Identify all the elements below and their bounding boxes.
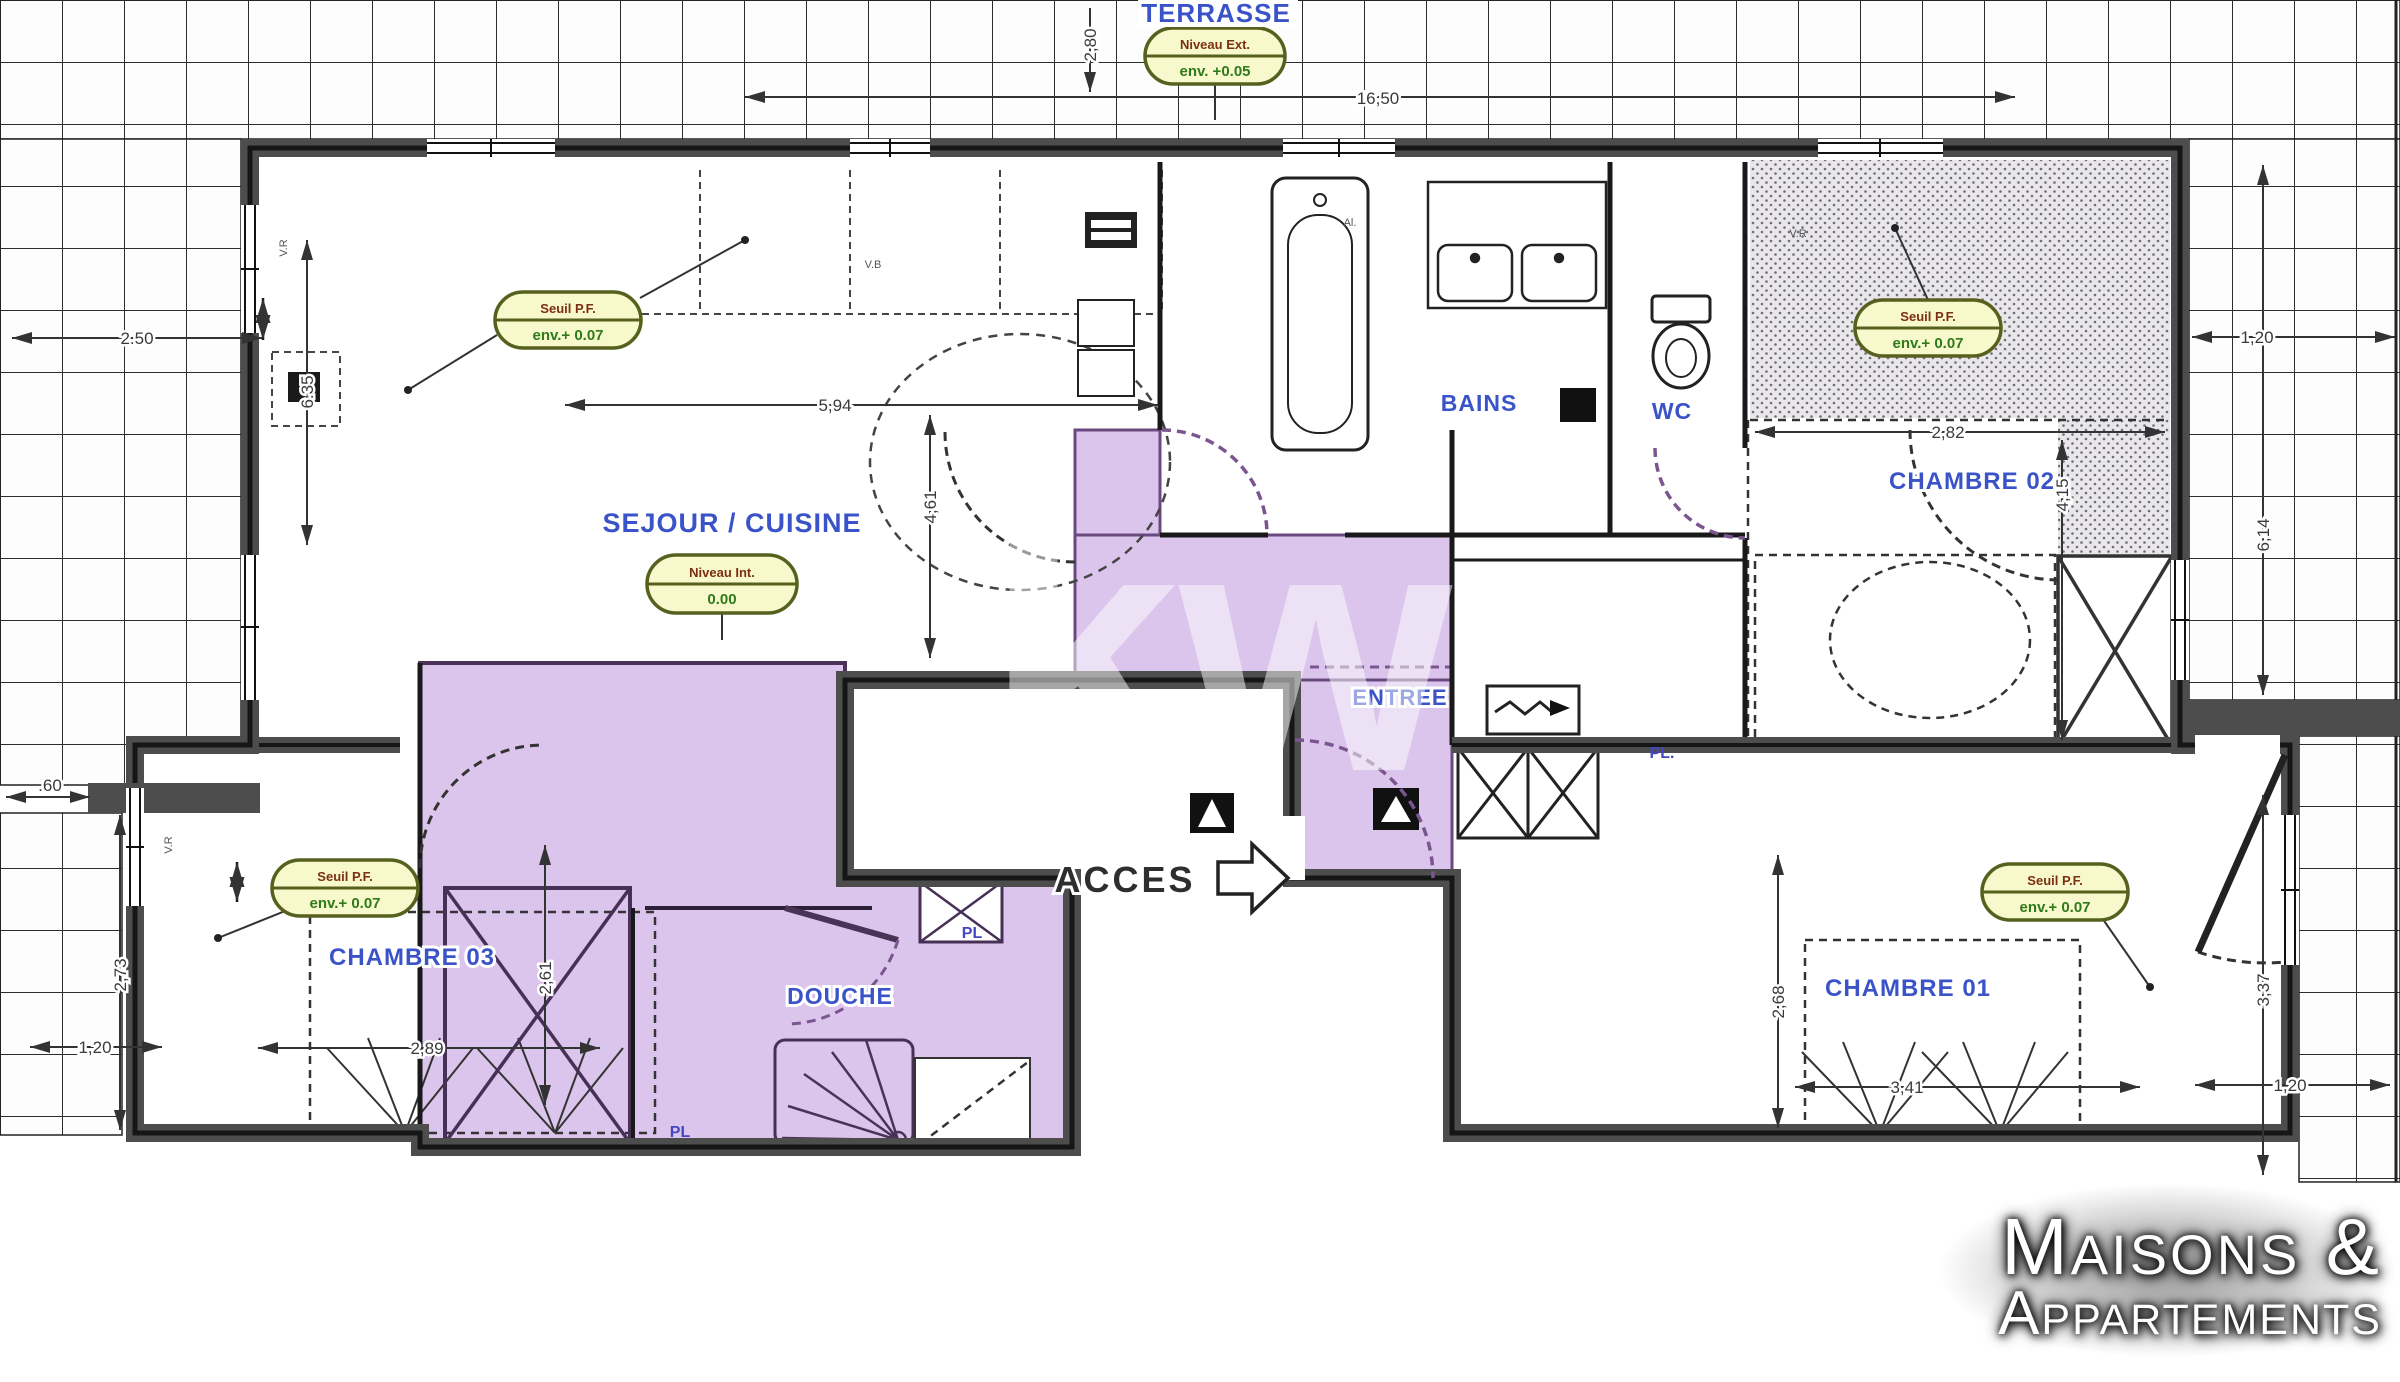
dim-chambre03-outer-width: 1,20	[78, 1038, 111, 1057]
dim-right-top-height: 6,14	[2254, 518, 2273, 551]
room-label-douche: DOUCHE	[787, 983, 893, 1009]
dim-sejour-height: 4,61	[921, 490, 940, 523]
toilet-icon	[1652, 296, 1710, 388]
badge-niveau-int: Niveau Int. 0.00	[647, 555, 797, 613]
badge-seuil-chambre01-line2: env.+ 0.07	[2019, 899, 2090, 916]
badge-seuil-chambre03-line2: env.+ 0.07	[309, 895, 380, 912]
wall-label-vr-sejour: V.R	[278, 239, 290, 256]
room-label-bains: BAINS	[1441, 390, 1518, 416]
badge-seuil-sejour-line1: Seuil P.F.	[540, 301, 595, 316]
double-sink-icon	[1428, 182, 1606, 308]
room-label-sejour: SEJOUR / CUISINE	[602, 508, 861, 538]
corridor-closets	[1458, 748, 1598, 838]
window-top-sejour	[427, 139, 555, 157]
doormat-vent-icon	[1487, 686, 1579, 734]
kw-watermark: kw	[985, 454, 1453, 845]
dim-chambre01-width: 3,41	[1890, 1078, 1923, 1097]
dim-top-width: 16,50	[1357, 89, 1400, 108]
room-label-wc: WC	[1652, 398, 1692, 424]
window-top-chambre02	[1818, 139, 1943, 157]
acces-label: ACCES	[1054, 859, 1195, 900]
agency-logo: Maisons & Appartements	[1938, 1183, 2396, 1358]
dim-left-height: 6.35	[298, 375, 317, 408]
room-label-pl-1: PL	[962, 925, 983, 942]
badge-seuil-sejour: Seuil P.F. env.+ 0.07	[495, 292, 641, 348]
badge-niveau-ext: Niveau Ext. env. +0.05	[1145, 28, 1285, 84]
badge-niveau-ext-line2: env. +0.05	[1179, 63, 1250, 80]
badge-seuil-chambre03-line1: Seuil P.F.	[317, 869, 372, 884]
dim-chambre03-width: 2,89	[410, 1039, 443, 1058]
floorplan-page: 16,50 2,80 2.50 6.35 5,94 4,61 2,82 4,15…	[0, 0, 2400, 1382]
window-left-sejour	[241, 205, 259, 333]
badge-seuil-sejour-line2: env.+ 0.07	[532, 327, 603, 344]
dim-top-depth: 2,80	[1081, 28, 1100, 61]
badge-niveau-int-line1: Niveau Int.	[689, 565, 755, 580]
badge-niveau-int-line2: 0.00	[707, 591, 736, 608]
dim-left-stub: .60	[38, 776, 62, 795]
window-top-kitchen	[850, 139, 930, 157]
kitchen-sink-unit	[1085, 212, 1137, 248]
badge-niveau-ext-line1: Niveau Ext.	[1180, 37, 1250, 52]
dim-right-bottom-height: 3,37	[2254, 973, 2273, 1006]
window-chambre02-right	[2171, 560, 2189, 680]
room-label-chambre03: CHAMBRE 03	[329, 944, 495, 971]
dim-chambre03-outer-height: 2,73	[111, 958, 130, 991]
room-label-chambre01: CHAMBRE 01	[1825, 975, 1991, 1002]
badge-seuil-chambre03: Seuil P.F. env.+ 0.07	[272, 860, 418, 916]
agency-logo-line1: Maisons &	[1998, 1209, 2382, 1285]
dim-chambre03-height: 2,61	[536, 961, 555, 994]
dim-sejour-width: 5,94	[818, 396, 851, 415]
room-label-terrasse: TERRASSE	[1141, 0, 1291, 28]
dim-chambre02-width: 2,82	[1931, 423, 1964, 442]
wall-label-vr-chambre03: V.R	[163, 836, 175, 853]
badge-seuil-chambre02: Seuil P.F. env.+ 0.07	[1855, 300, 2001, 356]
acces-arrow-icon	[1218, 844, 1288, 912]
window-chambre01	[2281, 815, 2299, 965]
bath-column-icon	[1560, 388, 1596, 422]
badge-seuil-chambre01-line1: Seuil P.F.	[2027, 873, 2082, 888]
dim-right-top-width: 1,20	[2240, 328, 2273, 347]
dim-left-width: 2.50	[120, 329, 153, 348]
floorplan-drawing: 16,50 2,80 2.50 6.35 5,94 4,61 2,82 4,15…	[0, 0, 2400, 1382]
badge-seuil-chambre01: Seuil P.F. env.+ 0.07	[1982, 864, 2128, 920]
wall-label-vr-chambre02: V.R	[1789, 228, 1806, 240]
agency-logo-line2: Appartements	[1998, 1285, 2382, 1344]
room-label-pl-3: PL.	[1650, 745, 1675, 762]
dim-chambre02-height: 4,15	[2053, 478, 2072, 511]
window-top-bains	[1283, 139, 1395, 157]
room-label-chambre02: CHAMBRE 02	[1889, 468, 2055, 495]
window-chambre03	[126, 788, 144, 906]
window-left-sejour-low	[241, 555, 259, 700]
dim-right-bottom-width: 1,20	[2273, 1076, 2306, 1095]
wall-label-vb: V.B	[865, 259, 882, 271]
badge-seuil-chambre02-line1: Seuil P.F.	[1900, 309, 1955, 324]
room-label-pl-2: PL	[670, 1124, 691, 1141]
wall-label-al: Al.	[1344, 217, 1357, 229]
badge-seuil-chambre02-line2: env.+ 0.07	[1892, 335, 1963, 352]
dim-chambre01-height: 2,68	[1769, 985, 1788, 1018]
